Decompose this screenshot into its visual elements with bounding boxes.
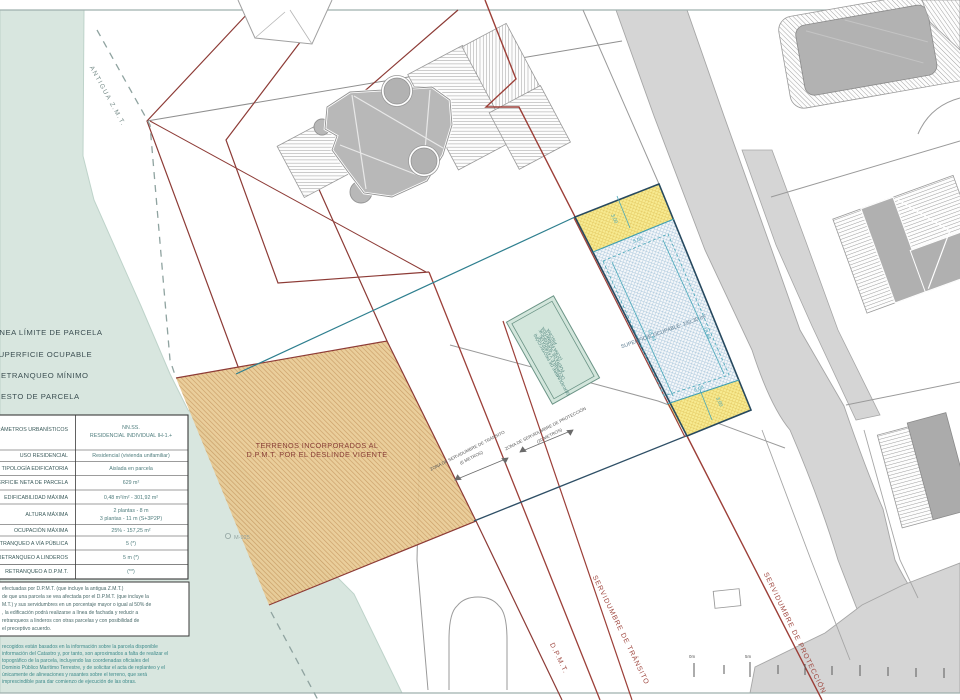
svg-text:RETRANQUEO A VÍA PÚBLICA: RETRANQUEO A VÍA PÚBLICA	[0, 540, 68, 547]
svg-text:retranqueos a linderos con otr: retranqueos a linderos con otras parcela…	[2, 618, 140, 624]
svg-text:Aislada en parcela: Aislada en parcela	[109, 466, 153, 472]
svg-text:RETRANQUEO A LINDEROS: RETRANQUEO A LINDEROS	[0, 555, 68, 561]
svg-text:3 plantas - 11 m (S+3P2P): 3 plantas - 11 m (S+3P2P)	[100, 516, 162, 522]
svg-text:629 m²: 629 m²	[123, 480, 140, 486]
svg-text:TERRENOS INCORPORADOS AL: TERRENOS INCORPORADOS AL	[256, 441, 379, 450]
svg-text:PARÁMETROS URBANÍSTICOS: PARÁMETROS URBANÍSTICOS	[0, 426, 68, 433]
svg-text:NN.SS.: NN.SS.	[122, 425, 140, 431]
svg-text:M.T.) y sus servidumbres en un: M.T.) y sus servidumbres en un porcentaj…	[2, 602, 151, 608]
svg-text:2 plantas - 8 m: 2 plantas - 8 m	[113, 508, 149, 514]
svg-text:EDIFICABILIDAD MÁXIMA: EDIFICABILIDAD MÁXIMA	[4, 494, 68, 501]
svg-text:5 (*): 5 (*)	[126, 541, 136, 547]
svg-text:M-925: M-925	[234, 535, 250, 541]
svg-text:D.P.M.T. POR EL DESLINDE VIGEN: D.P.M.T. POR EL DESLINDE VIGENTE	[247, 450, 388, 459]
svg-text:RETRANQUEO A D.P.M.T.: RETRANQUEO A D.P.M.T.	[5, 569, 68, 575]
svg-text:RETRANQUEO MÍNIMO: RETRANQUEO MÍNIMO	[0, 371, 89, 380]
svg-text:OCUPACIÓN MÁXIMA: OCUPACIÓN MÁXIMA	[14, 527, 69, 534]
svg-text:5 m (*): 5 m (*)	[123, 555, 139, 561]
svg-text:0m: 0m	[689, 654, 695, 659]
svg-text:, la edificación podrá realiza: , la edificación podrá realizarse a líne…	[2, 610, 138, 616]
svg-text:RESIDENCIAL INDIVIDUAL IH-1.+: RESIDENCIAL INDIVIDUAL IH-1.+	[90, 433, 172, 439]
svg-text:TIPOLOGÍA EDIFICATORIA: TIPOLOGÍA EDIFICATORIA	[2, 465, 69, 472]
svg-text:SUPERFICIE NETA DE PARCELA: SUPERFICIE NETA DE PARCELA	[0, 480, 68, 486]
svg-text:recogidos están basados en la: recogidos están basados en la informació…	[2, 644, 158, 650]
svg-text:USO RESIDENCIAL: USO RESIDENCIAL	[20, 453, 68, 459]
svg-text:topográfico de la parcela, inc: topográfico de la parcela, incluyendo la…	[2, 658, 149, 664]
svg-text:5m: 5m	[745, 654, 751, 659]
svg-text:ALTURA MÁXIMA: ALTURA MÁXIMA	[25, 511, 68, 518]
svg-text:información del Catastro y, po: información del Catastro y, por tanto, s…	[2, 651, 168, 657]
svg-text:efectuadas por D.P.M.T. (que i: efectuadas por D.P.M.T. (que incluye la …	[2, 586, 124, 592]
svg-text:SUPERFICIE OCUPABLE: SUPERFICIE OCUPABLE	[0, 350, 92, 359]
svg-text:el preceptivo acuerdo.: el preceptivo acuerdo.	[2, 626, 51, 632]
svg-text:únicamente de alineaciones y r: únicamente de alineaciones y rasantes so…	[2, 672, 147, 678]
svg-text:RESTO DE PARCELA: RESTO DE PARCELA	[0, 392, 80, 401]
svg-text:25% - 157,25 m²: 25% - 157,25 m²	[111, 528, 150, 534]
svg-text:Dominio Público Marítimo Terre: Dominio Público Marítimo Terrestre, y de…	[2, 665, 165, 671]
svg-text:imprescindible para dar comien: imprescindible para dar comienzo de ejec…	[2, 679, 136, 685]
svg-text:Residencial (vivienda unifamil: Residencial (vivienda unifamiliar)	[92, 453, 170, 459]
svg-text:de que una parcela se vea afec: de que una parcela se vea afectada por e…	[2, 594, 149, 600]
svg-text:0,48 m²/m² - 301,92 m²: 0,48 m²/m² - 301,92 m²	[104, 495, 158, 501]
svg-text:(**): (**)	[127, 569, 135, 575]
svg-text:LÍNEA LÍMITE DE PARCELA: LÍNEA LÍMITE DE PARCELA	[0, 328, 103, 337]
